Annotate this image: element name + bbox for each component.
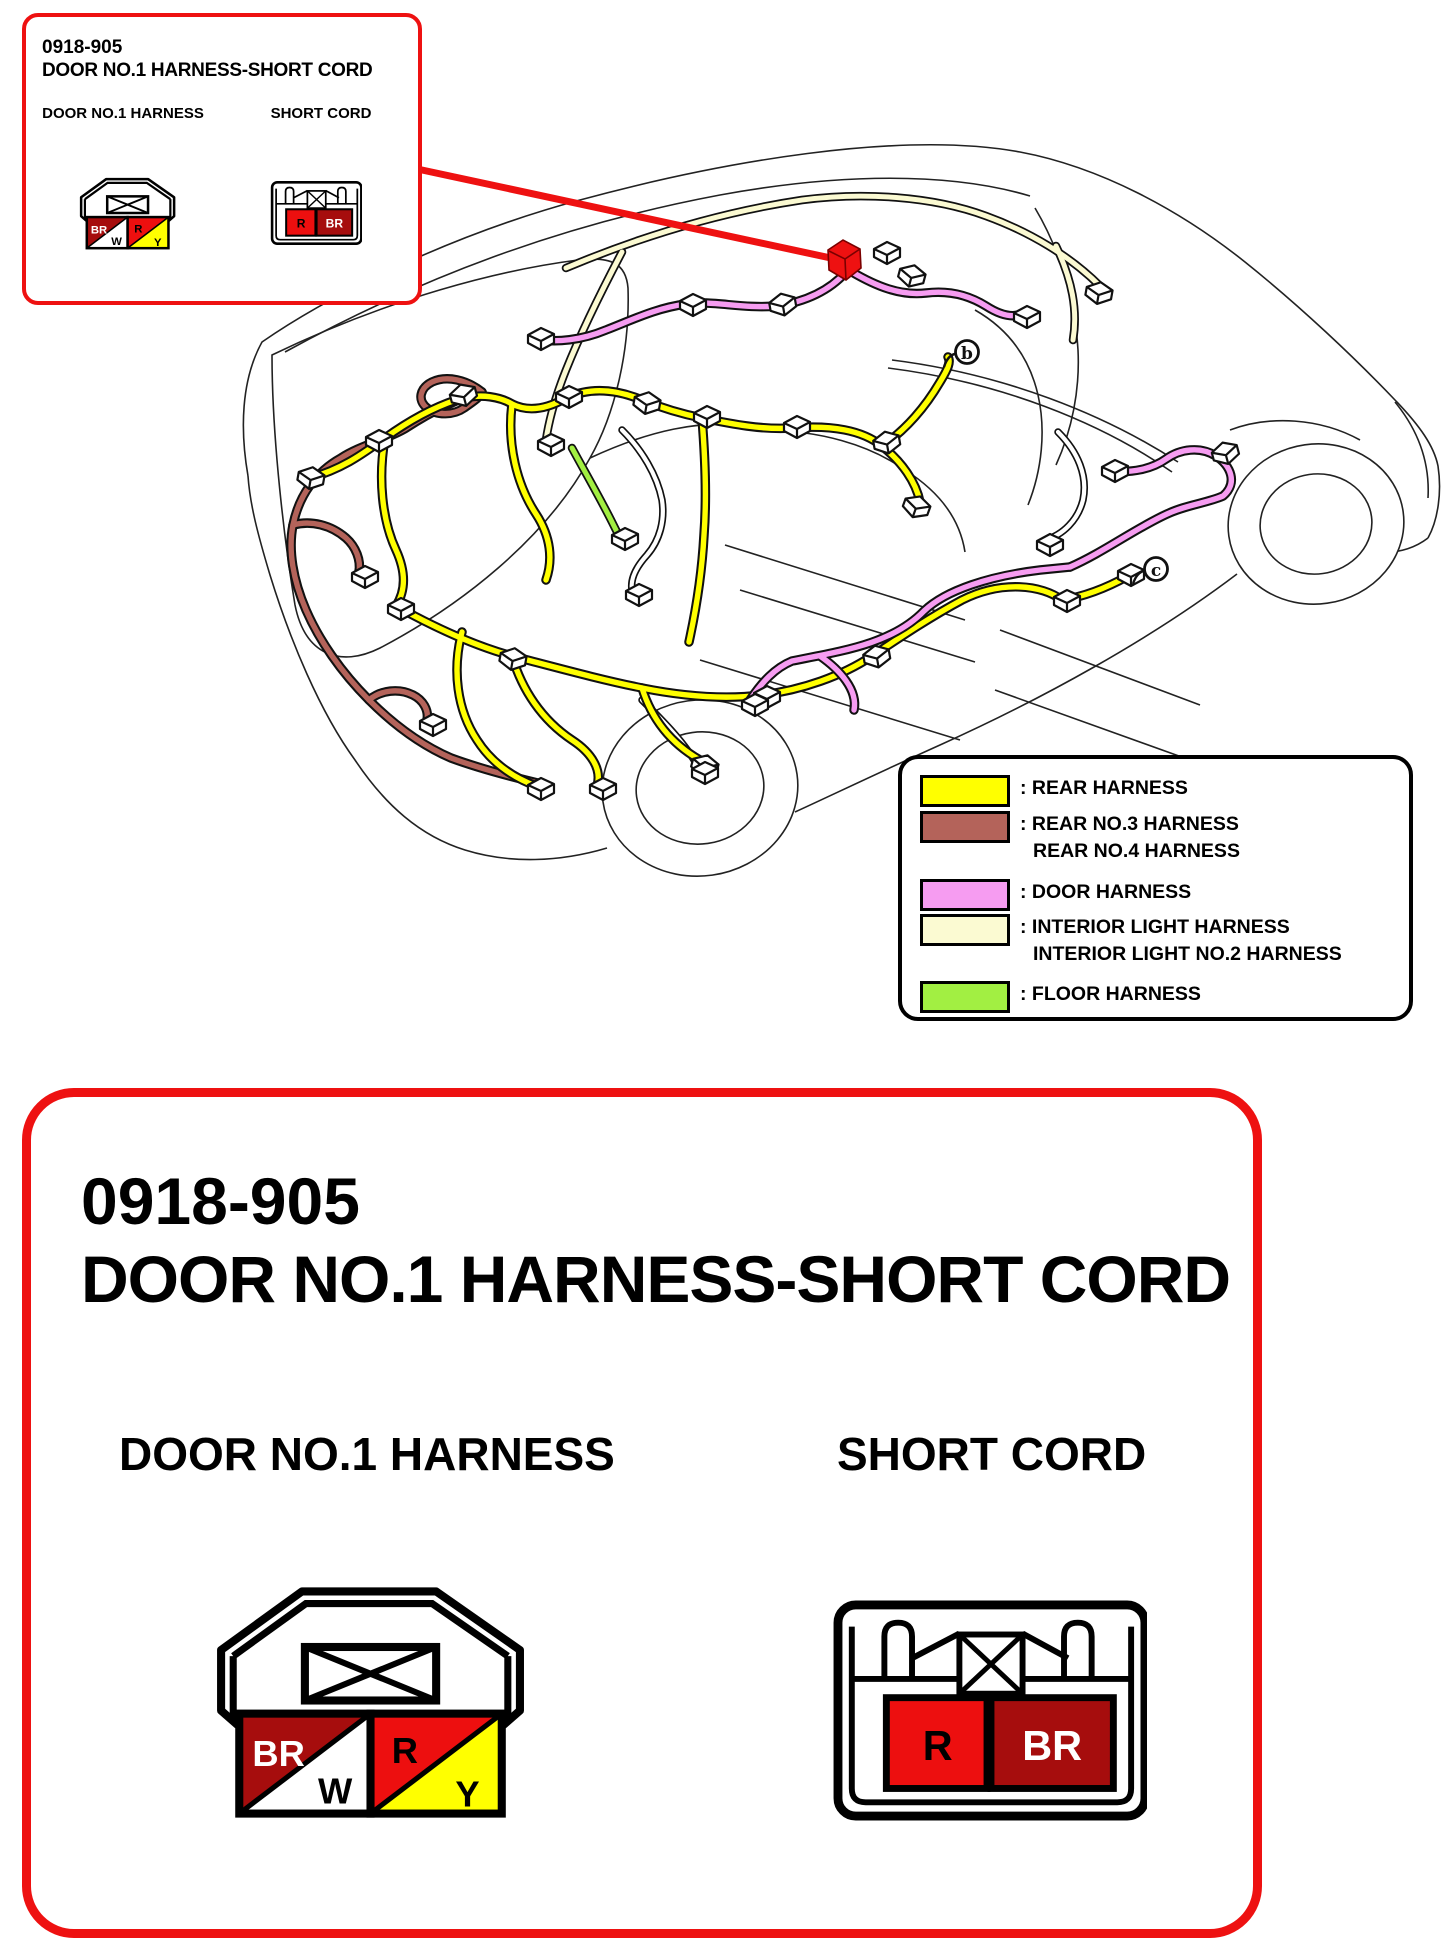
front-wheel: [1218, 433, 1415, 616]
legend-label-rear-no4: REAR NO.4 HARNESS: [1020, 838, 1240, 865]
overview-door-harness-label: DOOR NO.1 HARNESS: [40, 105, 206, 122]
detail-title: DOOR NO.1 HARNESS-SHORT CORD: [81, 1241, 1230, 1317]
legend-swatch-door: [920, 879, 1010, 911]
detail-short-cord-label: SHORT CORD: [837, 1427, 1146, 1481]
legend-row-floor: : FLOOR HARNESS: [920, 981, 1201, 1013]
legend-row-rear: : REAR HARNESS: [920, 775, 1188, 807]
legend-label-interior-light-no2: INTERIOR LIGHT NO.2 HARNESS: [1020, 941, 1342, 968]
connector-boxes: [296, 242, 1241, 800]
rear-wheel: [591, 687, 810, 889]
detail-door-harness-label: DOOR NO.1 HARNESS: [119, 1427, 615, 1481]
legend-row-interior-light: : INTERIOR LIGHT HARNESSINTERIOR LIGHT N…: [920, 914, 1342, 968]
detail-short-cord-connector: [831, 1597, 1147, 1824]
detail-part-number: 0918-905: [81, 1163, 360, 1239]
detail-panel: 0918-905 DOOR NO.1 HARNESS-SHORT CORD DO…: [22, 1088, 1262, 1938]
legend-label-floor: : FLOOR HARNESS: [1020, 981, 1201, 1008]
detail-door-connector: [211, 1579, 526, 1822]
legend-label-interior-light: : INTERIOR LIGHT HARNESS: [1020, 914, 1342, 941]
overview-part-number: 0918-905: [42, 37, 122, 59]
harness-legend: : REAR HARNESS : REAR NO.3 HARNESSREAR N…: [898, 755, 1413, 1021]
overview-short-cord-connector: [270, 180, 362, 246]
marker-c-label: c: [1151, 561, 1161, 581]
legend-label-rear: : REAR HARNESS: [1020, 775, 1188, 802]
overview-title: DOOR NO.1 HARNESS-SHORT CORD: [42, 60, 372, 82]
marker-b-label: b: [961, 344, 973, 364]
legend-swatch-rear-no3-no4: [920, 811, 1010, 843]
legend-row-rear-no3-no4: : REAR NO.3 HARNESSREAR NO.4 HARNESS: [920, 811, 1240, 865]
overview-door-connector: [78, 175, 176, 251]
overview-short-cord-label: SHORT CORD: [238, 105, 404, 122]
legend-swatch-interior-light: [920, 914, 1010, 946]
legend-swatch-rear: [920, 775, 1010, 807]
legend-row-door: : DOOR HARNESS: [920, 879, 1191, 911]
overview-callout-box: 0918-905 DOOR NO.1 HARNESS-SHORT CORD DO…: [22, 13, 422, 305]
legend-label-door: : DOOR HARNESS: [1020, 879, 1191, 906]
legend-label-rear-no3: : REAR NO.3 HARNESS: [1020, 811, 1240, 838]
legend-swatch-floor: [920, 981, 1010, 1013]
page-root: { "colors": { "accent_red": "#EE1111", "…: [0, 0, 1443, 1950]
